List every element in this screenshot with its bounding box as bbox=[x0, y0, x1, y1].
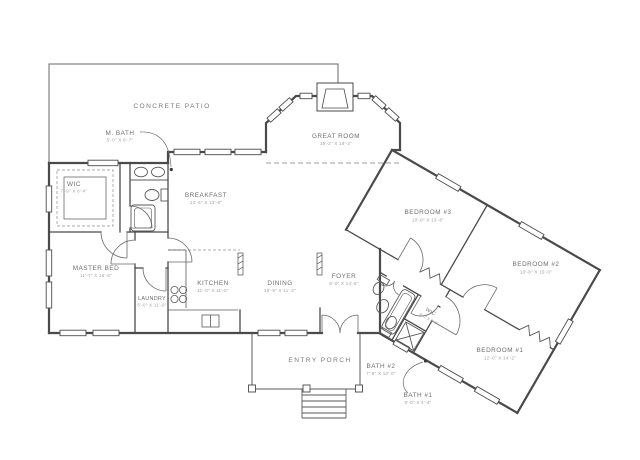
window bbox=[436, 174, 461, 192]
room-label-mbath: M. BATH bbox=[106, 130, 135, 137]
room-dims-dining: 10'-9" X 11'-2" bbox=[264, 288, 296, 293]
porch-post bbox=[356, 385, 363, 392]
floor-plan-svg: CONCRETE PATIO ENTRY PORCH M. BATH 5'-0"… bbox=[0, 0, 640, 460]
porch-steps bbox=[302, 389, 346, 418]
room-dims-bedroom1: 12'-0" X 14'-2" bbox=[484, 356, 516, 361]
room-label-bath2: BATH #2 bbox=[367, 363, 396, 370]
porch-post bbox=[303, 385, 310, 392]
window bbox=[519, 222, 544, 240]
toilet-icon bbox=[371, 280, 386, 296]
room-dims-kitchen: 11'-0" X 11'-0" bbox=[197, 288, 229, 293]
stove-burner bbox=[179, 286, 186, 293]
window bbox=[174, 149, 200, 155]
room-label-laundry: LAUNDRY bbox=[138, 296, 166, 302]
room-label-great-room: GREAT ROOM bbox=[312, 133, 360, 140]
windows-main bbox=[46, 93, 399, 336]
room-dims-laundry: 5'-0" X 11'-0" bbox=[137, 303, 166, 308]
cased-opening-jambs bbox=[238, 253, 322, 275]
room-dims-great-room: 19'-2" X 19'-2" bbox=[320, 141, 352, 146]
interior-walls bbox=[49, 152, 320, 333]
exterior-walls bbox=[49, 96, 400, 333]
room-label-master-bed: MASTER BED bbox=[73, 265, 120, 272]
room-label-wic-master: WIC bbox=[67, 181, 81, 188]
wic-shelving bbox=[57, 170, 113, 226]
window bbox=[285, 330, 307, 336]
labels: CONCRETE PATIO ENTRY PORCH M. BATH 5'-0"… bbox=[61, 103, 560, 405]
stove-burner bbox=[171, 286, 178, 293]
room-dims-mbath: 5'-0" X 8'-7" bbox=[107, 138, 134, 143]
room-dims-wic-master: 7'-9" X 6'-4" bbox=[61, 189, 88, 194]
room-dims-master-bed: 11'-7" X 16'-6" bbox=[80, 273, 112, 278]
window bbox=[555, 319, 573, 344]
room-label-bath1: BATH #1 bbox=[404, 392, 433, 399]
room-label-bedroom3: BEDROOM #3 bbox=[405, 209, 452, 216]
room-dims-bedroom2: 10'-8" X 15'-0" bbox=[520, 270, 552, 275]
windows-wing bbox=[353, 174, 603, 417]
room-label-kitchen: KITCHEN bbox=[197, 280, 229, 287]
room-dims-bedroom3: 10'-8" X 13'-8" bbox=[412, 218, 444, 223]
master-bath-fixtures bbox=[130, 167, 168, 231]
toilet-tank bbox=[161, 189, 168, 201]
window bbox=[46, 250, 52, 276]
sink-icon bbox=[374, 297, 391, 315]
patio-outline bbox=[49, 64, 338, 163]
room-label-bedroom2: BEDROOM #2 bbox=[513, 261, 560, 268]
sink-icon bbox=[152, 167, 165, 177]
room-label-dining: DINING bbox=[267, 280, 292, 287]
stove-burner bbox=[179, 295, 186, 302]
room-dims-foyer: 9'-0" X 14'-6" bbox=[329, 281, 359, 286]
room-dims-bath2: 7'-8" X 10'-0" bbox=[366, 371, 396, 376]
stove-burner bbox=[171, 295, 178, 302]
room-dims-bath1: 8'-0" X 4'-4" bbox=[405, 400, 432, 405]
room-label-bedroom1: BEDROOM #1 bbox=[477, 347, 524, 354]
window bbox=[88, 160, 118, 166]
patio-label: CONCRETE PATIO bbox=[133, 103, 210, 110]
window bbox=[267, 109, 281, 122]
window bbox=[205, 149, 231, 155]
room-label-breakfast: BREAKFAST bbox=[185, 192, 227, 199]
wing-door-arcs bbox=[376, 237, 497, 344]
sink-icon bbox=[135, 167, 148, 177]
window bbox=[258, 330, 280, 336]
room-dims-breakfast: 13'-6" X 13'-6" bbox=[190, 200, 222, 205]
leader-lines bbox=[140, 132, 427, 393]
window bbox=[385, 108, 399, 121]
window bbox=[93, 330, 119, 336]
porch-label: ENTRY PORCH bbox=[288, 357, 351, 364]
window bbox=[438, 365, 463, 383]
window bbox=[46, 282, 52, 308]
window bbox=[46, 186, 52, 212]
window bbox=[372, 96, 386, 109]
window bbox=[279, 98, 293, 111]
toilet-icon bbox=[145, 190, 159, 201]
floor-plan-page: CONCRETE PATIO ENTRY PORCH M. BATH 5'-0"… bbox=[0, 0, 640, 460]
window bbox=[393, 339, 410, 352]
window bbox=[300, 93, 312, 99]
window bbox=[60, 330, 86, 336]
fireplace-icon bbox=[317, 83, 353, 111]
window bbox=[474, 386, 499, 404]
window bbox=[235, 149, 261, 155]
toilet-icon bbox=[383, 315, 398, 331]
porch-post bbox=[249, 385, 256, 392]
room-label-foyer: FOYER bbox=[332, 273, 357, 280]
window bbox=[358, 93, 370, 99]
